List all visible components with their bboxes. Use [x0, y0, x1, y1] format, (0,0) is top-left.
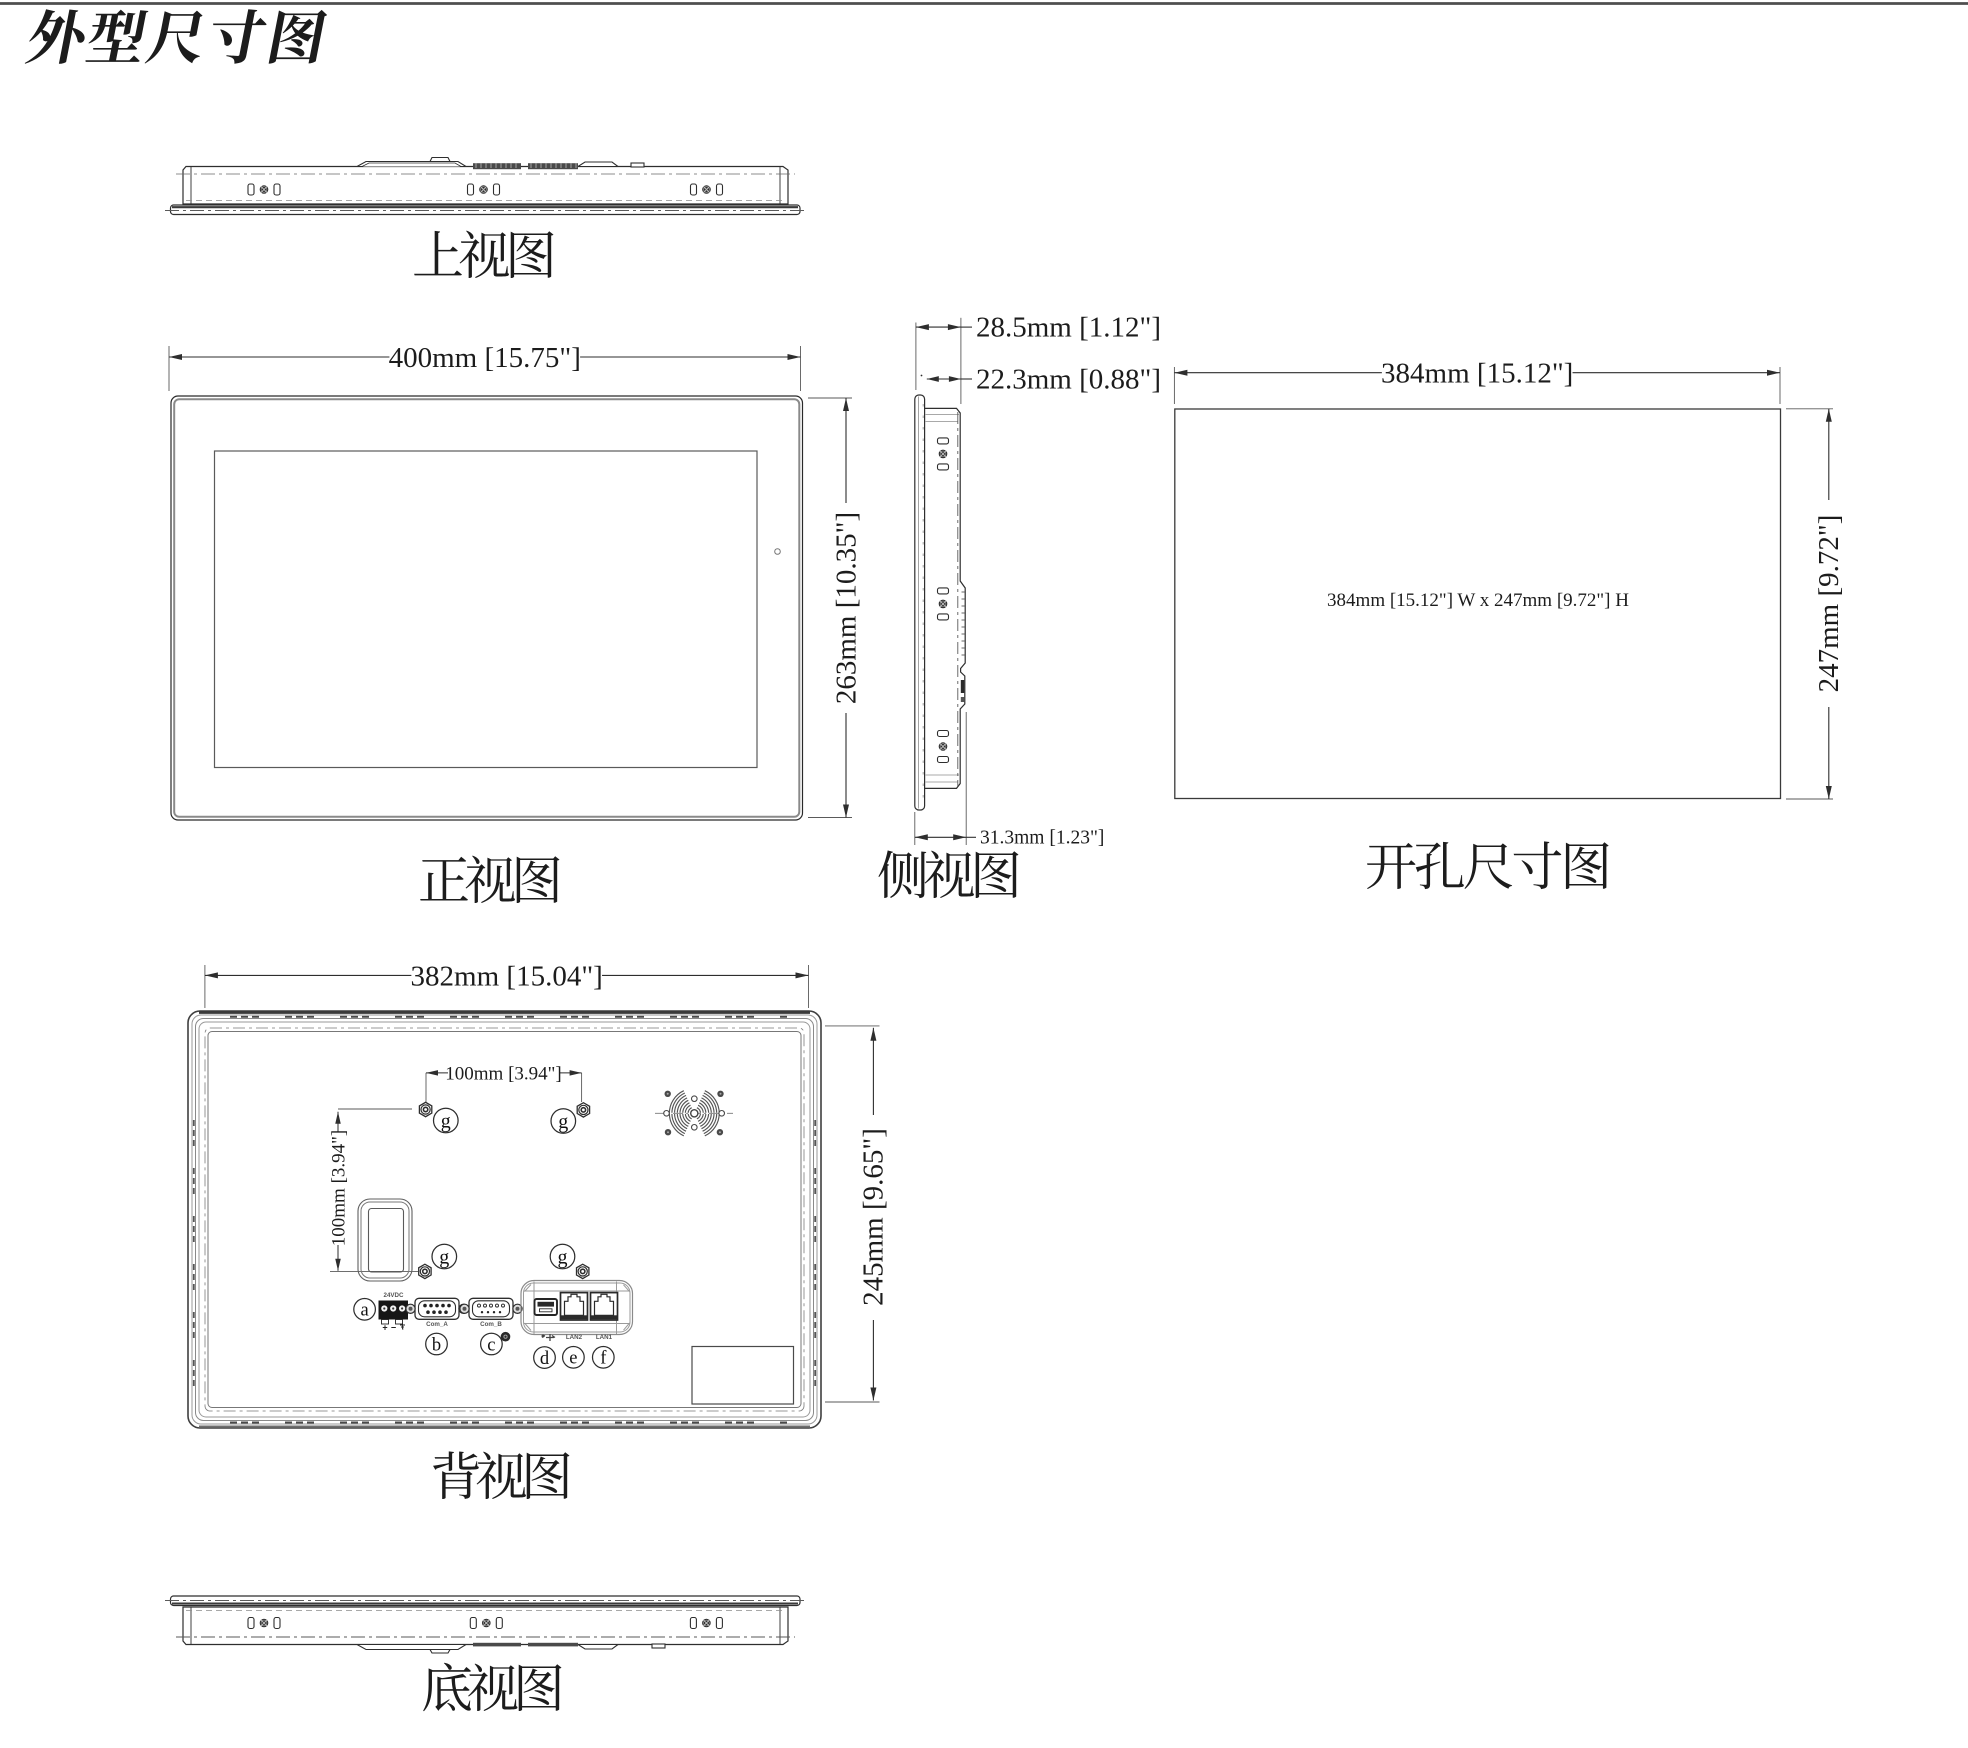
svg-text:384mm [15.12"] W x 247mm [9.72: 384mm [15.12"] W x 247mm [9.72"] H — [1327, 590, 1629, 611]
svg-text:f: f — [600, 1349, 607, 1369]
svg-text:g: g — [558, 1246, 568, 1268]
svg-text:24VDC: 24VDC — [384, 1292, 404, 1299]
svg-text:+: + — [382, 1323, 387, 1333]
svg-text:100mm [3.94"]: 100mm [3.94"] — [445, 1063, 561, 1084]
svg-text:28.5mm [1.12"]: 28.5mm [1.12"] — [976, 312, 1161, 344]
svg-text:b: b — [432, 1335, 441, 1355]
svg-text:384mm [15.12"]: 384mm [15.12"] — [1381, 358, 1573, 390]
svg-text:100mm [3.94"]: 100mm [3.94"] — [328, 1130, 349, 1246]
svg-text:31.3mm [1.23"]: 31.3mm [1.23"] — [980, 828, 1104, 849]
svg-text:g: g — [558, 1111, 568, 1133]
svg-text:c: c — [487, 1335, 495, 1355]
svg-text:−: − — [391, 1323, 396, 1333]
svg-text:263mm [10.35"]: 263mm [10.35"] — [831, 512, 863, 704]
svg-text:245mm [9.65"]: 245mm [9.65"] — [858, 1128, 890, 1306]
svg-text:e: e — [569, 1349, 577, 1369]
svg-text:g: g — [441, 1110, 451, 1132]
svg-text:400mm [15.75"]: 400mm [15.75"] — [389, 342, 581, 374]
svg-text:Com_B: Com_B — [480, 1321, 502, 1328]
svg-text:Com_A: Com_A — [426, 1321, 448, 1328]
svg-text:d: d — [540, 1349, 550, 1369]
svg-text:22.3mm [0.88"]: 22.3mm [0.88"] — [976, 364, 1161, 396]
svg-text:g: g — [439, 1246, 449, 1268]
svg-text:LAN2: LAN2 — [566, 1334, 583, 1341]
svg-text:382mm [15.04"]: 382mm [15.04"] — [411, 960, 603, 992]
svg-text:LAN1: LAN1 — [596, 1334, 613, 1341]
svg-text:a: a — [360, 1301, 368, 1321]
svg-text:247mm [9.72"]: 247mm [9.72"] — [1813, 515, 1845, 693]
